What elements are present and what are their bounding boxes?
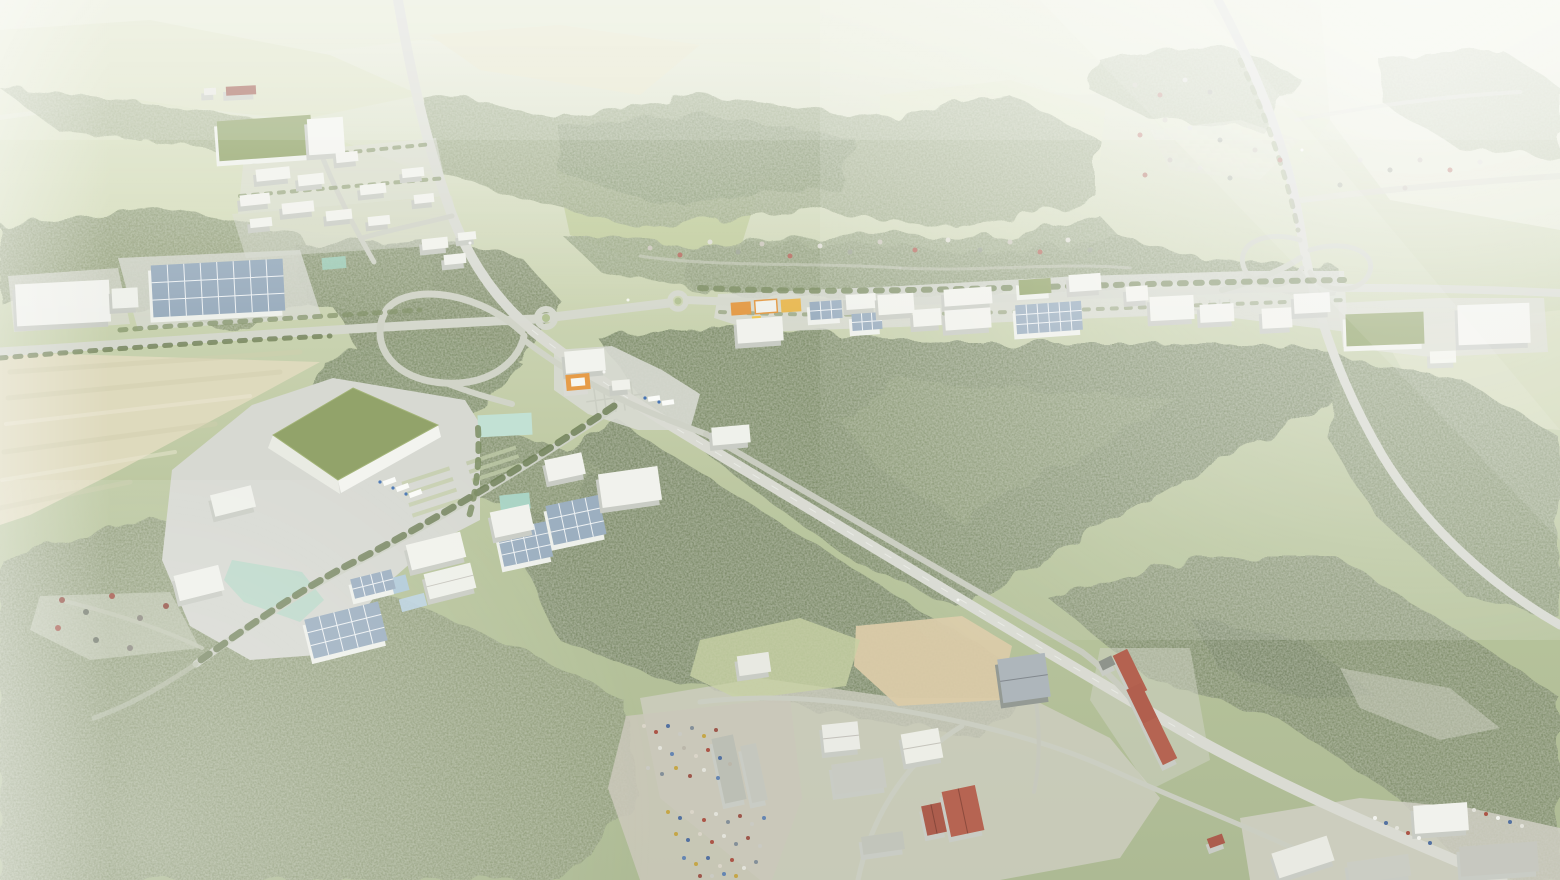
aerial-render (0, 0, 1560, 880)
aerial-render-canvas (0, 0, 1560, 880)
haze-veil (0, 0, 1560, 880)
haze-overlay (0, 0, 1560, 880)
